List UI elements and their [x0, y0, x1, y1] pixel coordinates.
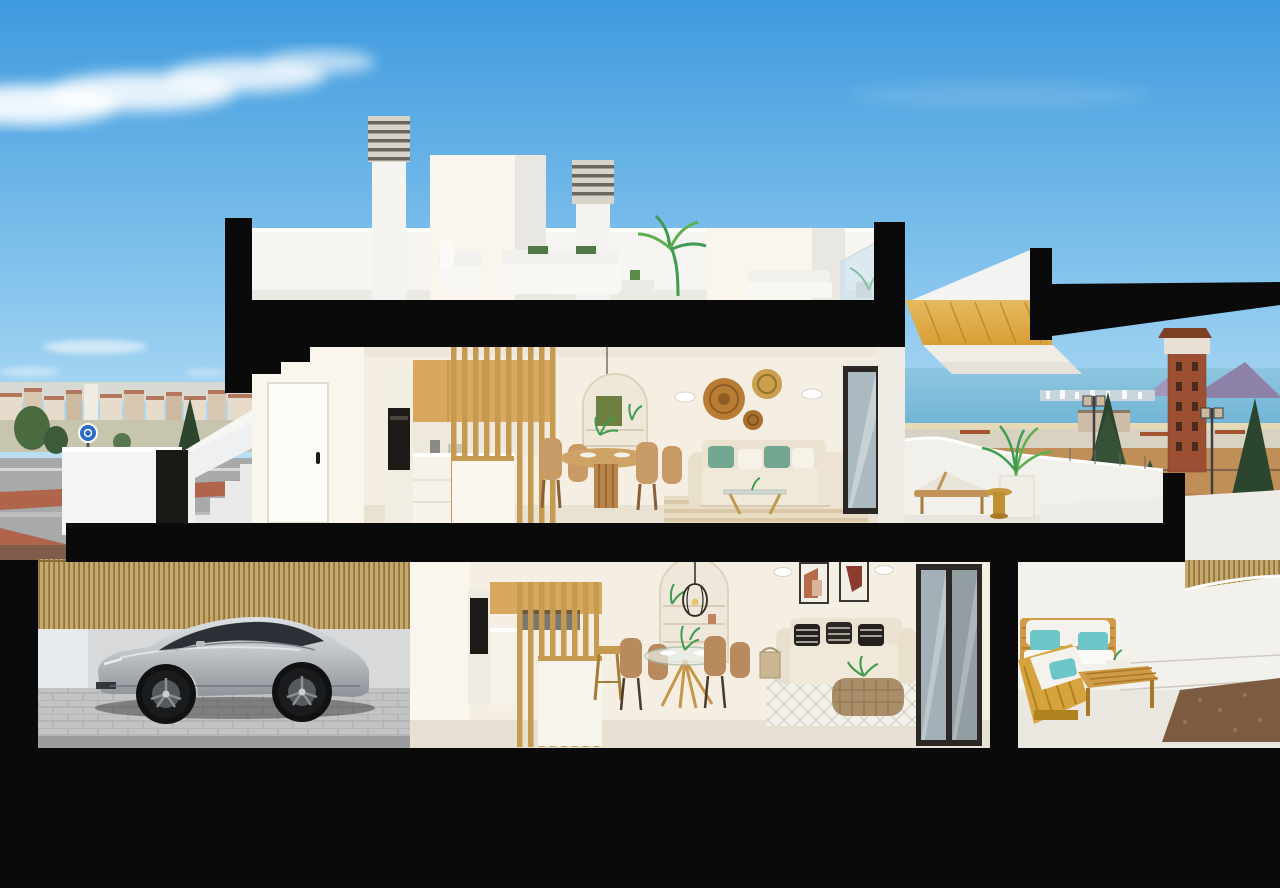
- cut-roof-post-right: [1030, 248, 1052, 340]
- lower-floor: [0, 545, 1280, 755]
- lower-terrace: [1018, 562, 1280, 748]
- cut-roof-post: [874, 222, 905, 347]
- mirror: [196, 641, 205, 647]
- terrace-jamb: [878, 347, 905, 523]
- chimney-left: [368, 116, 410, 302]
- cut-left-beam: [225, 218, 252, 393]
- cut-ground: [0, 748, 1280, 888]
- floor-basket: [760, 648, 780, 678]
- sliding-door-upper: [843, 360, 881, 514]
- property-cutaway-render: [0, 0, 1280, 888]
- oven-lower: [470, 598, 488, 654]
- kitchen-island-upper: [452, 456, 514, 525]
- upper-floor: [252, 338, 905, 528]
- sliding-doors-lower: [916, 564, 982, 746]
- cut-top-slab: [252, 300, 905, 347]
- entry-door: [268, 383, 328, 523]
- cut-terrace-stub: [1163, 473, 1185, 525]
- kitchen-island-lower: [538, 656, 602, 746]
- cut-lower-column: [990, 555, 1018, 753]
- garage: [0, 545, 410, 755]
- street-door: [156, 450, 188, 524]
- front-wheel: [136, 664, 196, 724]
- plant-pot: [1000, 476, 1034, 518]
- rear-wheel: [272, 662, 332, 722]
- scene-canvas: [0, 0, 1280, 888]
- lower-interior: [410, 558, 990, 752]
- door-handle: [316, 452, 320, 464]
- reed-fence-garage: [38, 559, 410, 629]
- teal-pillow: [1030, 630, 1060, 652]
- sofa-lower: [776, 618, 916, 684]
